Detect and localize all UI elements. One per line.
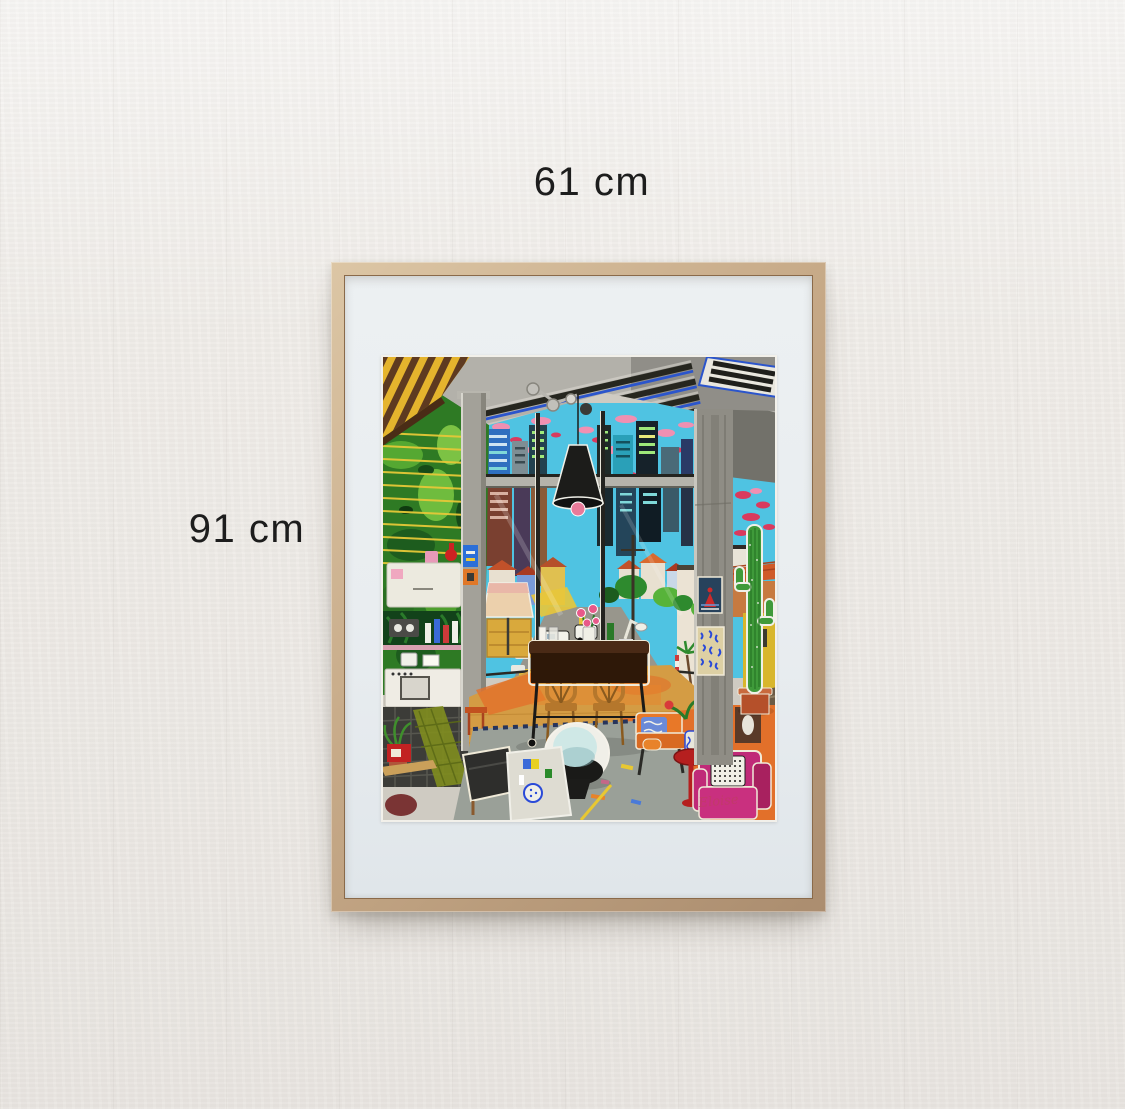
height-dimension-label: 91 cm (189, 507, 305, 552)
width-dimension-label: 61 cm (534, 160, 650, 205)
textured-wall: 61 cm 91 cm (0, 0, 1125, 1109)
artwork-print: Eloise (381, 355, 777, 822)
corner-artwork-figure (742, 715, 754, 735)
floor-lamp (483, 583, 533, 657)
interior-cityscape-painting: Eloise (381, 355, 777, 822)
right-pillar (694, 409, 733, 765)
frame-mat: Eloise (344, 275, 813, 899)
picture-frame: Eloise (331, 262, 826, 912)
coffee-table (507, 747, 571, 821)
pillar-poster-red-figure (698, 577, 722, 613)
kitchen-corner (381, 543, 469, 816)
pillar-poster-blue-squiggles (697, 627, 724, 675)
